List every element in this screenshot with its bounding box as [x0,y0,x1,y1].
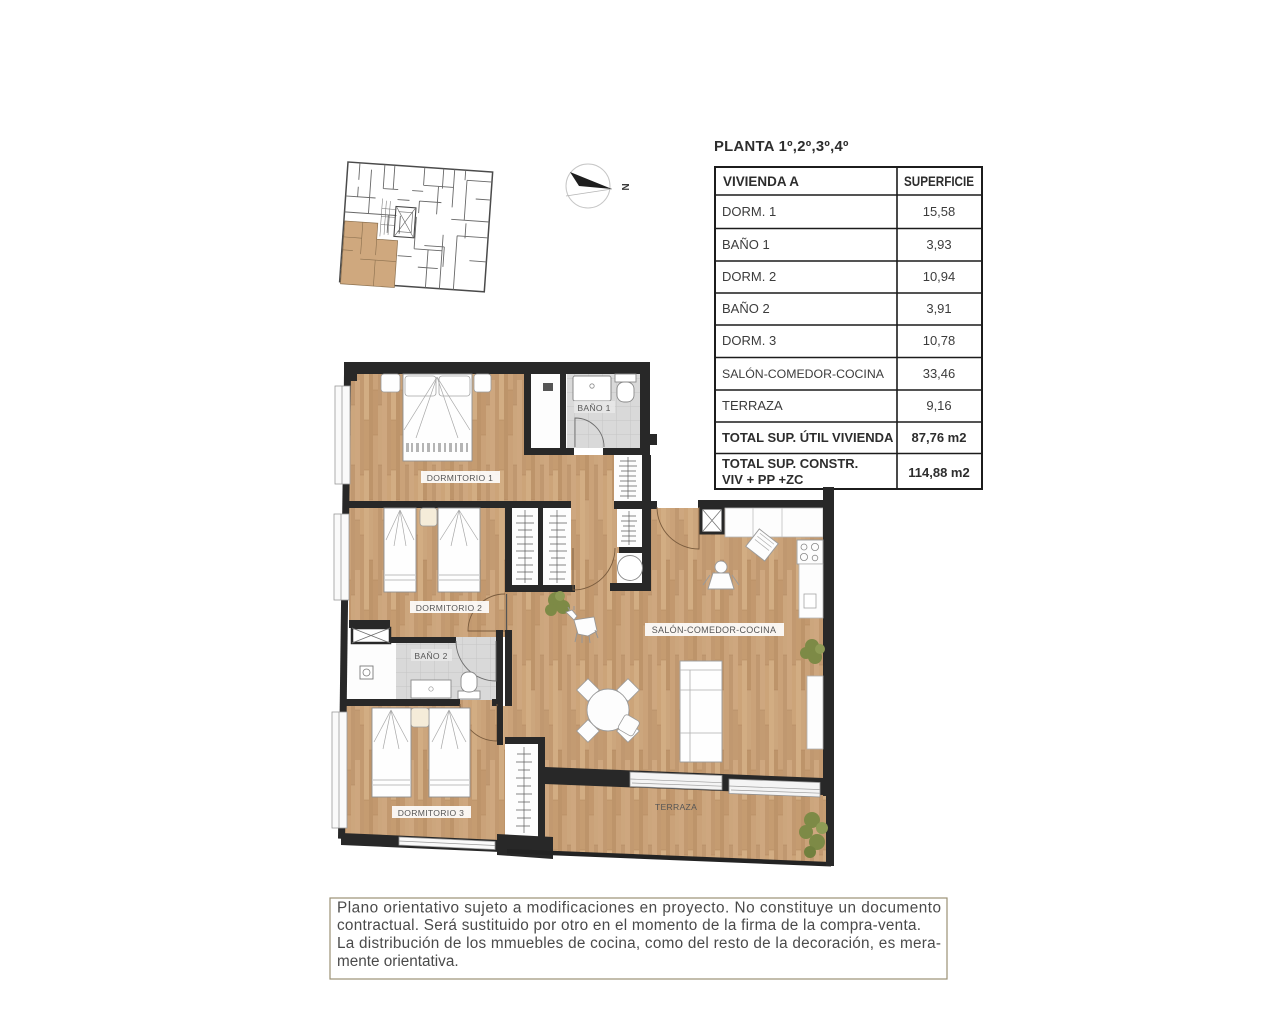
svg-text:TERRAZA: TERRAZA [722,398,783,413]
svg-text:TOTAL SUP. CONSTR.: TOTAL SUP. CONSTR. [722,456,858,471]
svg-text:BAÑO 2: BAÑO 2 [722,301,770,316]
svg-text:3,93: 3,93 [926,237,951,252]
svg-text:Plano orientativo sujeto a mod: Plano orientativo sujeto a modificacione… [337,900,941,917]
svg-text:N: N [619,183,630,190]
svg-text:DORM. 3: DORM. 3 [722,333,776,348]
svg-text:DORM. 2: DORM. 2 [722,269,776,284]
svg-text:DORMITORIO 3: DORMITORIO 3 [398,808,464,818]
svg-text:DORMITORIO 2: DORMITORIO 2 [416,603,482,613]
svg-text:15,58: 15,58 [923,204,956,219]
svg-text:114,88 m2: 114,88 m2 [908,465,969,480]
svg-text:3,91: 3,91 [926,301,951,316]
svg-text:BAÑO 2: BAÑO 2 [414,651,447,661]
svg-text:BAÑO 1: BAÑO 1 [722,237,770,252]
svg-text:PLANTA 1º,2º,3º,4º: PLANTA 1º,2º,3º,4º [714,139,849,155]
svg-text:La distribución de los mmueble: La distribución de los mmuebles de cocin… [337,935,941,952]
svg-text:BAÑO 1: BAÑO 1 [577,403,610,413]
svg-text:SUPERFICIE: SUPERFICIE [904,173,974,189]
svg-text:VIVIENDA A: VIVIENDA A [723,173,799,189]
svg-text:9,16: 9,16 [926,398,951,413]
svg-text:SALÓN-COMEDOR-COCINA: SALÓN-COMEDOR-COCINA [652,625,777,635]
svg-text:87,76 m2: 87,76 m2 [912,430,967,445]
svg-text:VIV + PP +ZC: VIV + PP +ZC [722,472,804,487]
svg-text:TOTAL SUP. ÚTIL VIVIENDA: TOTAL SUP. ÚTIL VIVIENDA [722,430,894,445]
svg-text:SALÓN-COMEDOR-COCINA: SALÓN-COMEDOR-COCINA [722,366,885,381]
svg-text:contractual. Será sustituido p: contractual. Será sustituido por otro en… [337,917,921,934]
svg-text:33,46: 33,46 [923,366,956,381]
svg-text:10,94: 10,94 [923,269,956,284]
svg-text:DORM. 1: DORM. 1 [722,204,776,219]
svg-text:mente orientativa.: mente orientativa. [337,953,459,970]
svg-text:10,78: 10,78 [923,333,956,348]
svg-text:DORMITORIO 1: DORMITORIO 1 [427,473,493,483]
svg-text:TERRAZA: TERRAZA [655,802,697,812]
